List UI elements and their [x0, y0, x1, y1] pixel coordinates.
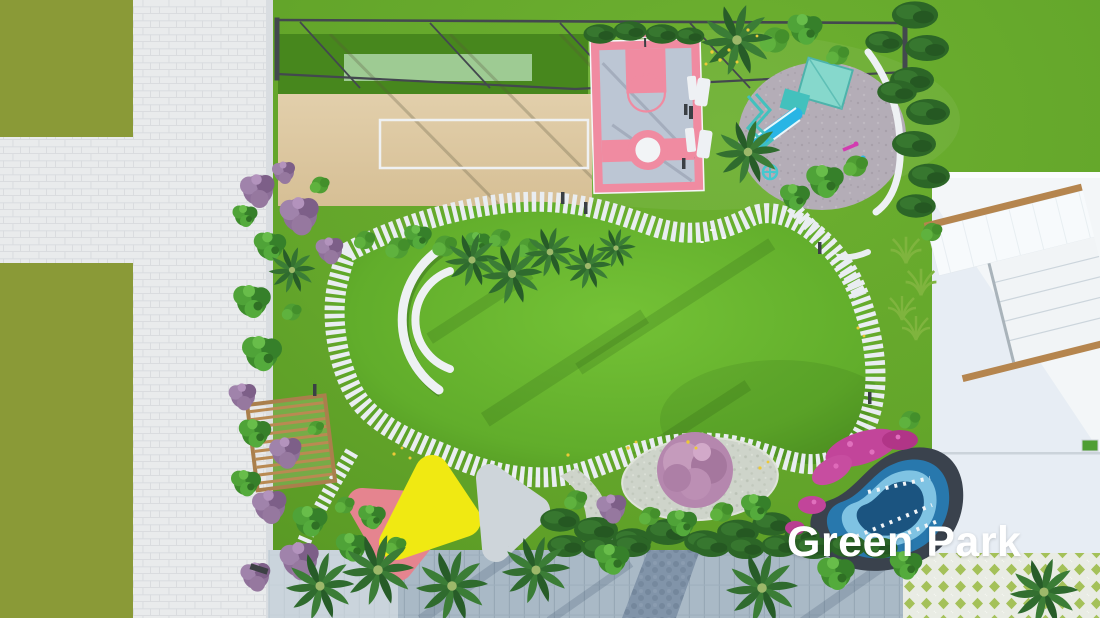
hedge-bush: [906, 99, 950, 125]
bollard: [682, 158, 686, 169]
hedge-bush: [877, 80, 917, 103]
hedge-bush: [865, 31, 902, 53]
lamp-post: [689, 106, 693, 119]
hedge-bush: [908, 164, 950, 189]
hedge-bush: [646, 24, 679, 44]
hedge-bush: [614, 21, 647, 41]
plaza-wall-line: [932, 452, 1100, 455]
plaza-wall-top-edge: [932, 172, 1100, 178]
court-key: [625, 48, 666, 93]
hedge-bush: [693, 535, 730, 557]
hedge-bush: [896, 194, 936, 217]
hedge-bush: [584, 24, 617, 44]
street-paving-horizontal: [0, 137, 133, 263]
park-name-watermark: Green Park: [787, 518, 1021, 567]
bollard: [684, 104, 688, 115]
hedge-bush: [727, 537, 764, 559]
pink-flowering-tree: [657, 432, 733, 508]
hedge-bush: [892, 1, 938, 28]
street-zone: [0, 0, 268, 618]
park-boundary-wall: [266, 0, 273, 618]
hedge-bush: [676, 28, 705, 45]
plaza-planter: [1082, 440, 1098, 451]
street-grass-block-top: [0, 0, 133, 137]
street-grass-block-bottom: [0, 263, 133, 618]
park-aerial-render: Green Park: [0, 0, 1100, 618]
hedge-bush: [892, 131, 936, 157]
hedge-bush: [905, 35, 949, 61]
hedge-bush: [540, 508, 580, 531]
